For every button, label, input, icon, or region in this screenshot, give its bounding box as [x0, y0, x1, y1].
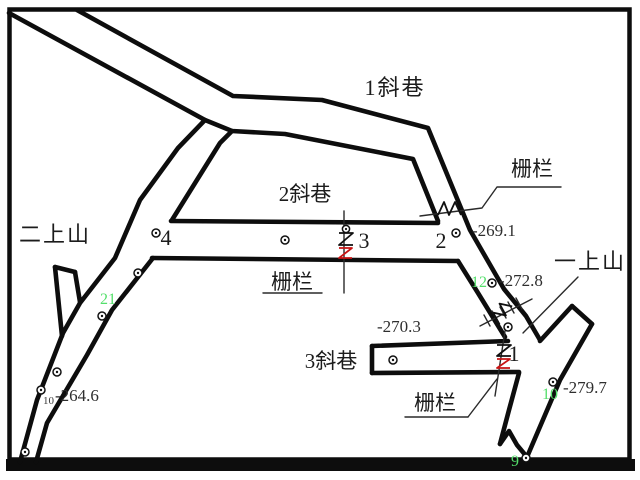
survey-point	[549, 378, 557, 386]
label-rise-one: 一上山	[554, 249, 626, 274]
survey-point	[21, 448, 29, 456]
label-incline-1: 1斜巷	[364, 75, 425, 100]
elevation--270.3: -270.3	[377, 317, 421, 336]
survey-point	[488, 279, 496, 287]
survey-point	[342, 225, 349, 232]
station-4: 4	[161, 225, 172, 250]
station-10-small: 10	[43, 395, 55, 407]
label-barrier-mid: 栅栏	[271, 270, 313, 294]
station-9-green: 9	[511, 453, 519, 470]
incline2-top-wall	[171, 221, 438, 223]
elevation--272.8: -272.8	[499, 271, 543, 290]
barrier-top-leader	[420, 187, 561, 216]
mine-plan-drawing: 1斜巷 2斜巷 3斜巷 二上山 一上山 栅栏 栅栏 栅栏 -269.1 -272…	[0, 0, 640, 480]
plan-canvas: 1斜巷 2斜巷 3斜巷 二上山 一上山 栅栏 栅栏 栅栏 -269.1 -272…	[0, 0, 640, 480]
survey-point	[98, 312, 106, 320]
incline1-inner-wall	[9, 13, 438, 221]
label-incline-2: 2斜巷	[279, 182, 332, 206]
survey-point	[152, 229, 160, 237]
station-21-green: 21	[100, 291, 116, 308]
label-barrier-top: 栅栏	[511, 157, 553, 181]
label-incline-3: 3斜巷	[305, 349, 358, 373]
survey-point	[452, 229, 460, 237]
station-12-green: 12	[471, 274, 487, 291]
rise-one-end-cap	[572, 306, 592, 324]
barrier-bottom-leader	[468, 379, 497, 417]
station-1: 1	[509, 341, 520, 366]
station-3: 3	[359, 228, 370, 253]
elevation--279.7: -279.7	[563, 378, 607, 397]
spur-left-edge	[55, 267, 62, 336]
survey-point	[522, 454, 530, 462]
station3-barrier-red	[339, 248, 352, 258]
survey-point	[53, 368, 61, 376]
drawing-frame	[6, 10, 635, 472]
elevation--269.1: -269.1	[472, 221, 516, 240]
incline3-bottom-wall	[372, 372, 519, 373]
spur-right-edge	[75, 272, 80, 302]
incline2-bottom-wall	[152, 258, 458, 261]
spur-cap	[55, 267, 75, 272]
station-2: 2	[436, 228, 447, 253]
survey-point	[389, 356, 397, 364]
station3-barrier-black	[339, 233, 353, 245]
survey-point	[281, 236, 289, 244]
label-barrier-bottom: 栅栏	[414, 391, 456, 415]
station-10-green: 10	[542, 386, 558, 403]
label-rise-two: 二上山	[19, 222, 91, 247]
incline3-top-wall	[372, 341, 508, 346]
survey-point	[37, 386, 45, 394]
survey-point	[504, 323, 512, 331]
survey-point	[134, 269, 142, 277]
elevation--264.6: -264.6	[55, 386, 99, 405]
